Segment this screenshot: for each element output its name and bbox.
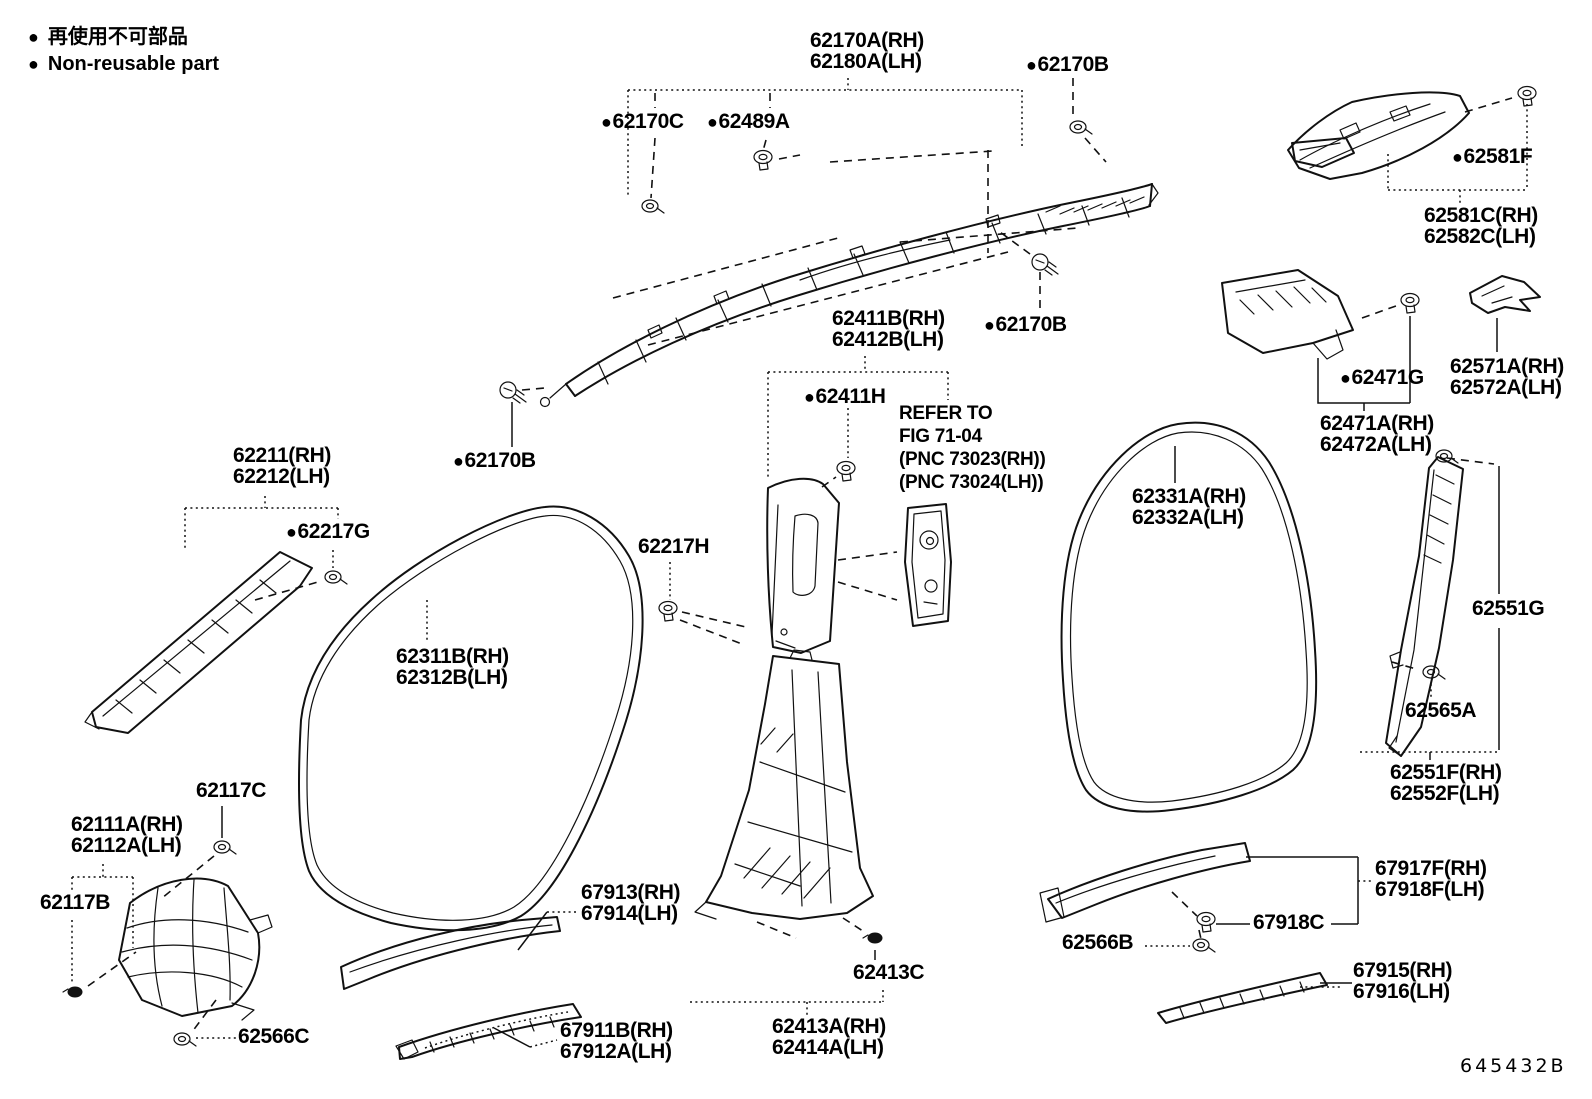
- part-label-line: 62566B: [1062, 932, 1133, 953]
- part-label-line: (PNC 73023(RH)): [899, 448, 1045, 471]
- part-label-line: 62581C(RH): [1424, 205, 1538, 226]
- part-label-line: 62411B(RH): [832, 308, 945, 329]
- part-label-62571a: 62571A(RH)62572A(LH): [1450, 356, 1564, 398]
- part-label-line: ●62170B: [984, 314, 1067, 336]
- part-label-line: 62414A(LH): [772, 1037, 886, 1058]
- part-label-line: 67913(RH): [581, 882, 680, 903]
- part-label-line: ●62471G: [1340, 367, 1424, 389]
- part-label-line: 62217H: [638, 536, 709, 557]
- part-label-62331a: 62331A(RH)62332A(LH): [1132, 486, 1246, 528]
- part-label-line: 62471A(RH): [1320, 413, 1434, 434]
- part-label-67911b: 67911B(RH)67912A(LH): [560, 1020, 673, 1062]
- labels-layer: 62170A(RH)62180A(LH)●62170B●62170C●62489…: [0, 0, 1592, 1099]
- part-label-62170c: ●62170C: [601, 111, 684, 133]
- part-label-line: 67911B(RH): [560, 1020, 673, 1041]
- part-label-line: ●62170C: [601, 111, 684, 133]
- part-label-line: 62472A(LH): [1320, 434, 1434, 455]
- part-label-62551g: 62551G: [1470, 598, 1546, 619]
- part-label-line: 62111A(RH): [71, 814, 183, 835]
- parts-diagram-page: ●再使用不可部品 ●Non-reusable part 62170A(RH)62…: [0, 0, 1592, 1099]
- part-label-line: 62311B(RH): [396, 646, 509, 667]
- part-label-62117b: 62117B: [40, 892, 110, 913]
- part-label-line: ●62489A: [707, 111, 790, 133]
- non-reusable-bullet-icon: ●: [453, 451, 463, 471]
- non-reusable-bullet-icon: ●: [984, 315, 994, 335]
- part-label-line: 62566C: [238, 1026, 309, 1047]
- part-label-line: 62112A(LH): [71, 835, 183, 856]
- part-label-62311b: 62311B(RH)62312B(LH): [396, 646, 509, 688]
- part-label-67917f: 67917F(RH)67918F(LH): [1375, 858, 1487, 900]
- part-label-62411b: 62411B(RH)62412B(LH): [832, 308, 945, 350]
- part-label-line: REFER TO: [899, 402, 1045, 425]
- part-label-62413c: 62413C: [853, 962, 924, 983]
- part-label-line: 67916(LH): [1353, 981, 1452, 1002]
- part-label-line: 62565A: [1405, 700, 1476, 721]
- part-label-line: 62582C(LH): [1424, 226, 1538, 247]
- part-label-67915: 67915(RH)67916(LH): [1353, 960, 1452, 1002]
- part-label-line: 62211(RH): [233, 445, 331, 466]
- part-label-line: 645432B: [1460, 1056, 1567, 1077]
- part-label-line: ●62581F: [1452, 146, 1532, 168]
- part-label-line: 62117C: [196, 780, 266, 801]
- part-label-line: 62572A(LH): [1450, 377, 1564, 398]
- non-reusable-bullet-icon: ●: [601, 112, 611, 132]
- part-label-line: FIG 71-04: [899, 425, 1045, 448]
- part-label-62471g: ●62471G: [1340, 367, 1424, 389]
- part-label-62581c: 62581C(RH)62582C(LH): [1424, 205, 1538, 247]
- part-label-line: 62117B: [40, 892, 110, 913]
- non-reusable-bullet-icon: ●: [804, 387, 814, 407]
- part-label-line: 62170A(RH): [810, 30, 924, 51]
- part-label-line: 67915(RH): [1353, 960, 1452, 981]
- non-reusable-bullet-icon: ●: [286, 522, 296, 542]
- part-label-62565a: 62565A: [1405, 700, 1476, 721]
- part-label-line: 62551G: [1472, 598, 1544, 619]
- non-reusable-bullet-icon: ●: [1026, 55, 1036, 75]
- non-reusable-bullet-icon: ●: [1340, 368, 1350, 388]
- part-label-refer-note: REFER TOFIG 71-04(PNC 73023(RH))(PNC 730…: [899, 402, 1045, 494]
- part-label-62217g: ●62217G: [286, 521, 370, 543]
- part-label-line: 62312B(LH): [396, 667, 509, 688]
- part-label-62581f: ●62581F: [1452, 146, 1532, 168]
- part-label-62170b-top: ●62170B: [1026, 54, 1109, 76]
- part-label-line: 67918C: [1253, 912, 1324, 933]
- part-label-line: 62212(LH): [233, 466, 331, 487]
- part-label-62211: 62211(RH)62212(LH): [233, 445, 331, 487]
- part-label-line: ●62411H: [804, 386, 886, 408]
- part-label-62170a: 62170A(RH)62180A(LH): [810, 30, 924, 72]
- part-label-line: 62331A(RH): [1132, 486, 1246, 507]
- part-label-line: 62551F(RH): [1390, 762, 1502, 783]
- part-label-line: 62180A(LH): [810, 51, 924, 72]
- part-label-62413a: 62413A(RH)62414A(LH): [772, 1016, 886, 1058]
- part-label-diagram-code: 645432B: [1460, 1056, 1567, 1077]
- part-label-line: 62412B(LH): [832, 329, 945, 350]
- part-label-62217h: 62217H: [638, 536, 709, 557]
- non-reusable-bullet-icon: ●: [1452, 147, 1462, 167]
- part-label-line: ●62170B: [453, 450, 536, 472]
- part-label-62489a: ●62489A: [707, 111, 790, 133]
- part-label-line: ●62217G: [286, 521, 370, 543]
- part-label-line: 67914(LH): [581, 903, 680, 924]
- part-label-line: 67917F(RH): [1375, 858, 1487, 879]
- part-label-line: 62413C: [853, 962, 924, 983]
- part-label-62411h: ●62411H: [804, 386, 886, 408]
- part-label-line: 62413A(RH): [772, 1016, 886, 1037]
- part-label-67913: 67913(RH)67914(LH): [581, 882, 680, 924]
- part-label-line: ●62170B: [1026, 54, 1109, 76]
- part-label-62170b-left: ●62170B: [453, 450, 536, 472]
- part-label-line: 67918F(LH): [1375, 879, 1487, 900]
- part-label-62111a: 62111A(RH)62112A(LH): [71, 814, 183, 856]
- part-label-62566c: 62566C: [238, 1026, 309, 1047]
- part-label-67918c: 67918C: [1253, 912, 1324, 933]
- part-label-62471a: 62471A(RH)62472A(LH): [1320, 413, 1434, 455]
- part-label-62170b-mid: ●62170B: [984, 314, 1067, 336]
- part-label-line: 62571A(RH): [1450, 356, 1564, 377]
- part-label-62566b: 62566B: [1062, 932, 1133, 953]
- non-reusable-bullet-icon: ●: [707, 112, 717, 132]
- part-label-62117c: 62117C: [196, 780, 266, 801]
- part-label-line: (PNC 73024(LH)): [899, 471, 1045, 494]
- part-label-line: 62552F(LH): [1390, 783, 1502, 804]
- part-label-line: 62332A(LH): [1132, 507, 1246, 528]
- part-label-line: 67912A(LH): [560, 1041, 673, 1062]
- part-label-62551f: 62551F(RH)62552F(LH): [1390, 762, 1502, 804]
